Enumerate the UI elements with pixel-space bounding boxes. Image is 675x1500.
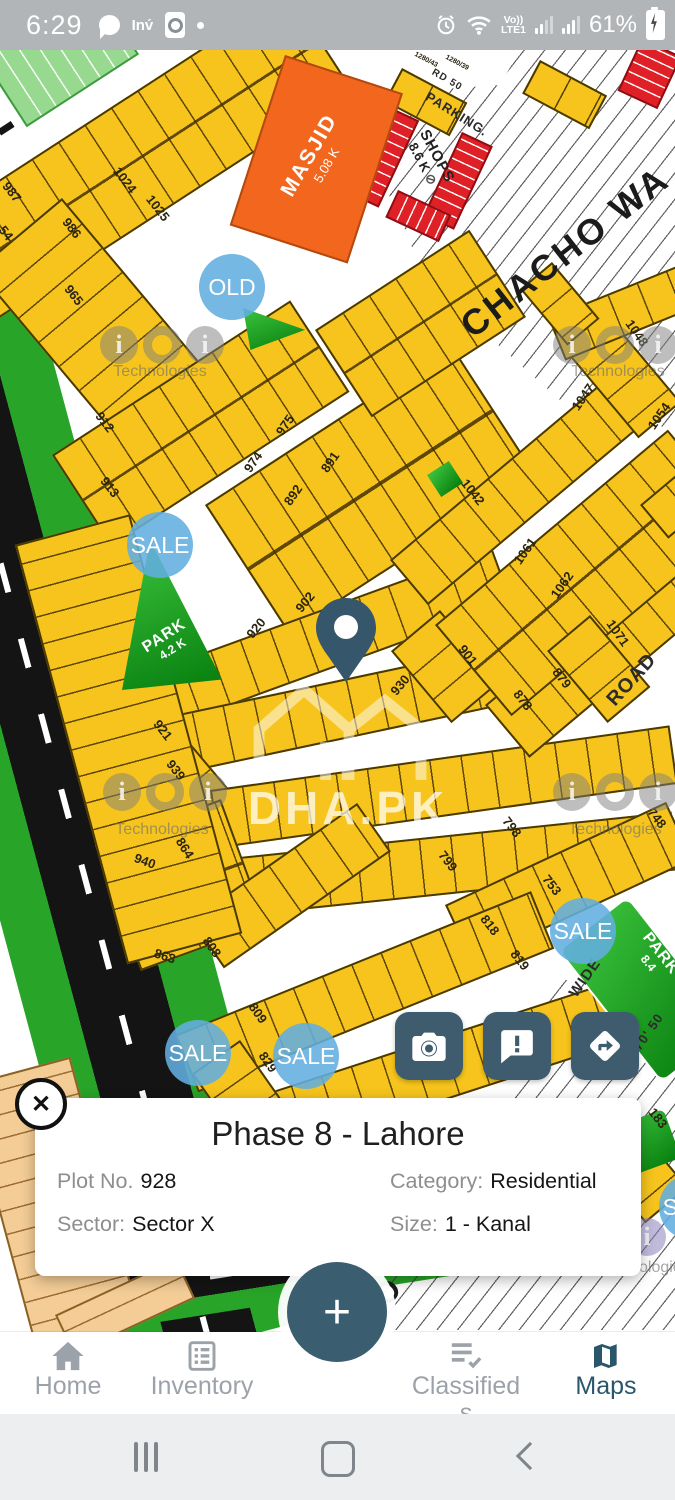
watermark-text: Technologies bbox=[115, 821, 208, 839]
wifi-icon bbox=[466, 14, 492, 36]
home-icon[interactable] bbox=[321, 1441, 355, 1477]
classifieds-icon bbox=[449, 1340, 483, 1372]
sector-field: Sector:Sector X bbox=[57, 1212, 338, 1237]
watermark-logo-icon: ii bbox=[100, 326, 224, 364]
watermark-text: Technologies bbox=[113, 363, 206, 381]
dha-house-watermark-icon bbox=[250, 672, 430, 787]
plot-label: 1280/39 bbox=[444, 54, 470, 72]
add-button[interactable]: + bbox=[287, 1262, 387, 1362]
maps-icon bbox=[590, 1340, 622, 1372]
old-marker[interactable]: OLD bbox=[199, 254, 265, 320]
battery-icon bbox=[646, 10, 665, 40]
feedback-icon bbox=[498, 1027, 536, 1065]
size-field: Size:1 - Kanal bbox=[338, 1212, 619, 1237]
signal-bars-icon bbox=[562, 16, 580, 34]
nav-item-inventory[interactable]: Inventory bbox=[138, 1340, 266, 1400]
inv-notification-text: Inv́ bbox=[132, 17, 154, 34]
category-field: Category:Residential bbox=[338, 1169, 619, 1194]
sale-marker[interactable]: SALE bbox=[127, 512, 193, 578]
directions-icon bbox=[585, 1026, 625, 1066]
home-icon bbox=[51, 1340, 85, 1372]
sale-marker[interactable]: SALE bbox=[273, 1023, 339, 1089]
camera-button[interactable] bbox=[395, 1012, 463, 1080]
battery-percent: 61% bbox=[589, 11, 637, 39]
status-bar: 6:29 Inv́ Vo))LTE1 61% bbox=[0, 0, 675, 50]
plot-no-field: Plot No.928 bbox=[57, 1169, 338, 1194]
plus-icon: + bbox=[323, 1285, 351, 1340]
watermark-logo-icon: ii bbox=[103, 773, 227, 811]
signal-bars-icon bbox=[535, 16, 553, 34]
close-icon: ✕ bbox=[31, 1090, 51, 1119]
back-icon[interactable] bbox=[516, 1442, 544, 1470]
watermark-text: Technologies bbox=[571, 363, 664, 381]
sale-marker[interactable]: SALE bbox=[550, 898, 616, 964]
dot-notification-icon bbox=[197, 22, 204, 29]
watermark-logo-icon: ii bbox=[553, 773, 675, 811]
android-navigation-bar bbox=[0, 1414, 675, 1500]
alarm-icon bbox=[435, 14, 457, 36]
feedback-button[interactable] bbox=[483, 1012, 551, 1080]
camera-icon bbox=[409, 1026, 449, 1066]
message-notification-icon bbox=[99, 15, 120, 35]
volte-indicator: Vo))LTE1 bbox=[501, 15, 526, 36]
dha-watermark-text: DHA.PK bbox=[248, 781, 448, 835]
card-title: Phase 8 - Lahore bbox=[35, 1115, 641, 1153]
watermark-logo-icon: ii bbox=[553, 326, 675, 364]
app-notification-icon bbox=[165, 12, 185, 38]
directions-button[interactable] bbox=[571, 1012, 639, 1080]
close-card-button[interactable]: ✕ bbox=[15, 1078, 67, 1130]
clock-time: 6:29 bbox=[26, 10, 83, 41]
sale-marker[interactable]: SALE bbox=[165, 1020, 231, 1086]
watermark-text: Technologies bbox=[568, 821, 661, 839]
nav-item-maps[interactable]: Maps bbox=[556, 1340, 656, 1400]
location-pin-icon bbox=[312, 596, 380, 688]
inventory-icon bbox=[186, 1340, 218, 1372]
recents-icon[interactable] bbox=[134, 1442, 158, 1472]
nav-item-home[interactable]: Home bbox=[18, 1340, 118, 1400]
plot-info-card: Phase 8 - Lahore Plot No.928 Category:Re… bbox=[35, 1098, 641, 1276]
